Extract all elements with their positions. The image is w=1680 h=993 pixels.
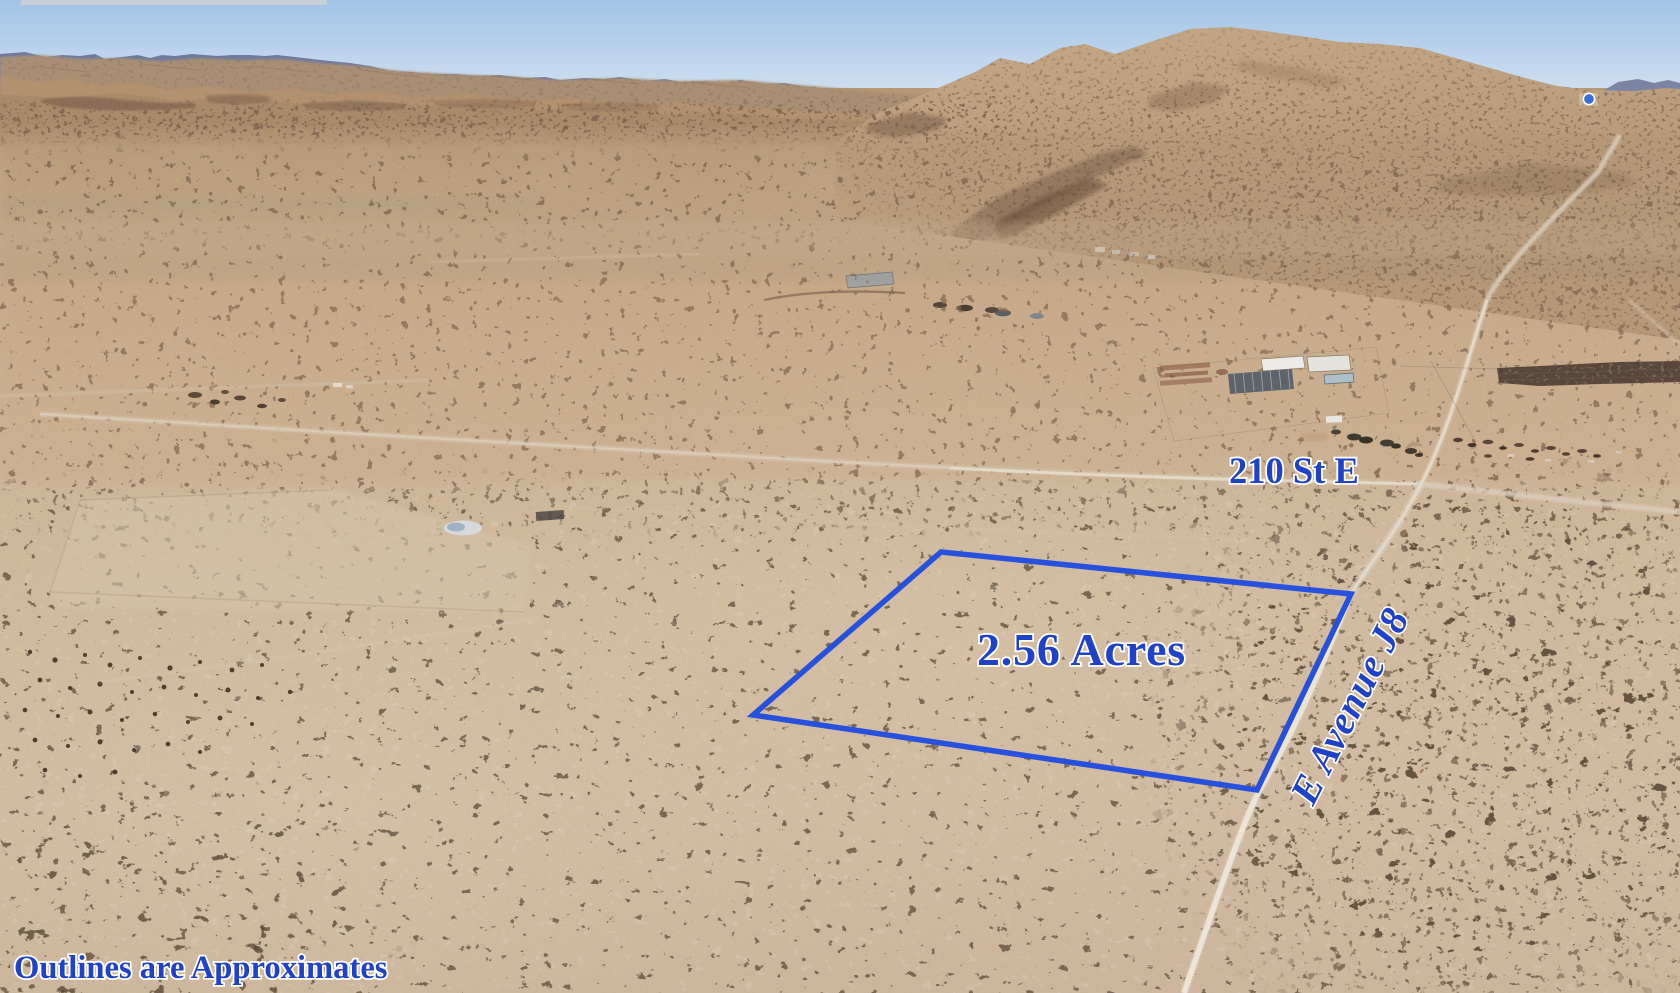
svg-text:Outlines are Approximates: Outlines are Approximates	[14, 950, 387, 986]
svg-text:2.56 Acres: 2.56 Acres	[977, 624, 1186, 675]
svg-text:210 St E: 210 St E	[1229, 450, 1359, 491]
